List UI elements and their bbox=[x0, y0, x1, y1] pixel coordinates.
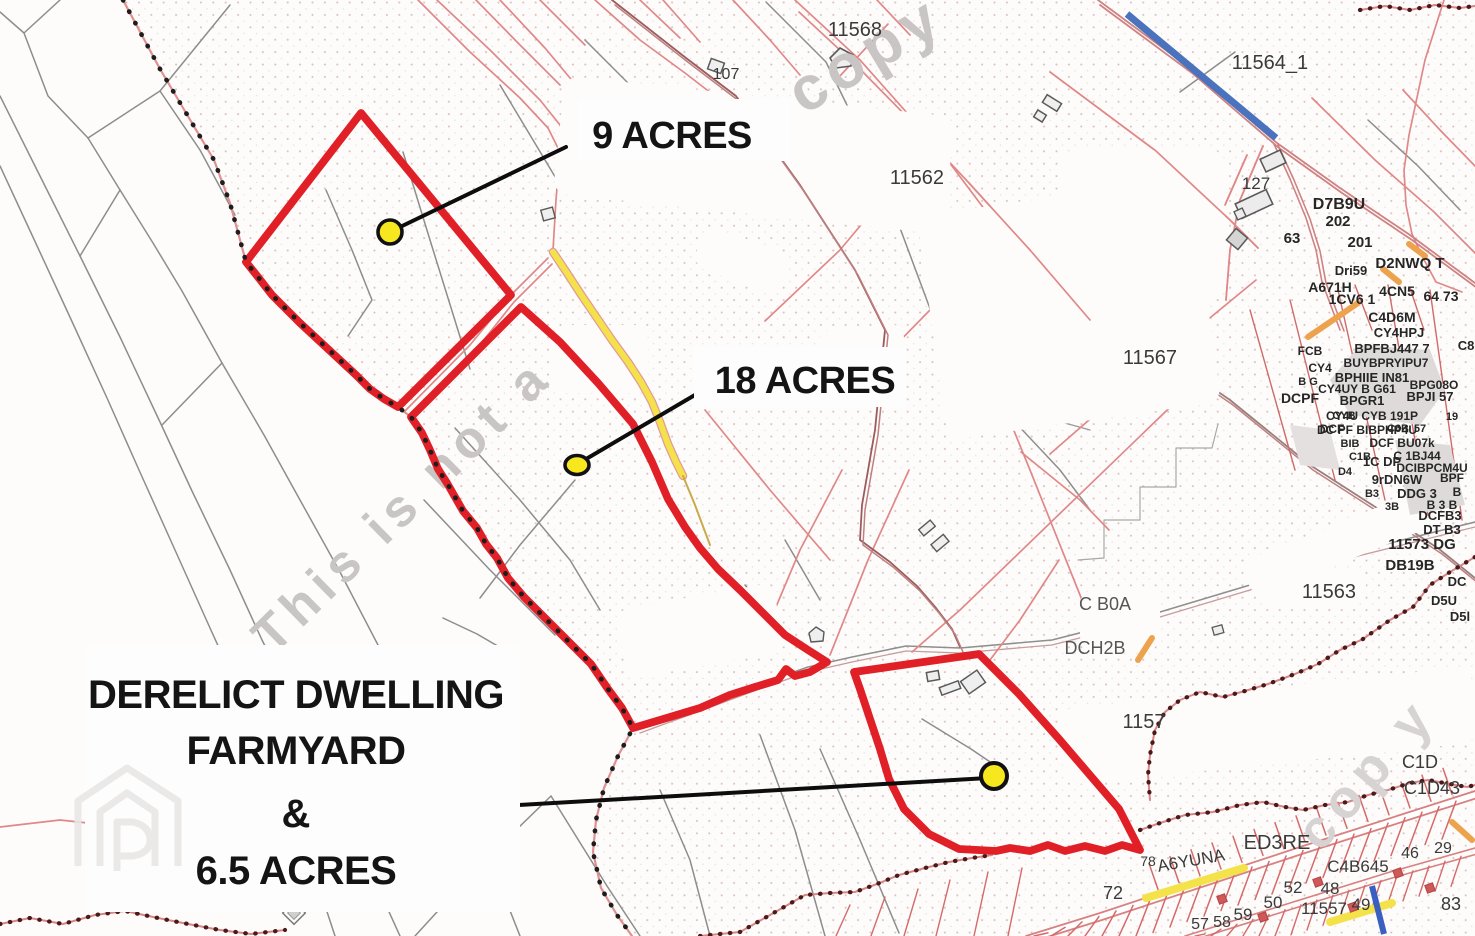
svg-text:DT B3: DT B3 bbox=[1423, 522, 1461, 537]
svg-text:11562: 11562 bbox=[890, 167, 944, 189]
svg-text:11573 DG: 11573 DG bbox=[1388, 536, 1456, 553]
svg-text:11564_1: 11564_1 bbox=[1232, 52, 1308, 74]
svg-text:BUYBPRYIPU7: BUYBPRYIPU7 bbox=[1344, 356, 1429, 370]
svg-text:C8: C8 bbox=[1458, 338, 1475, 353]
svg-text:4CN5: 4CN5 bbox=[1379, 283, 1415, 299]
svg-text:FARMYARD: FARMYARD bbox=[187, 729, 406, 773]
svg-text:ED3RE: ED3RE bbox=[1244, 832, 1311, 854]
svg-text:D2NWQ T: D2NWQ T bbox=[1375, 255, 1444, 272]
svg-text:C6B: C6B bbox=[1387, 423, 1409, 435]
svg-text:9rDN6W: 9rDN6W bbox=[1372, 472, 1423, 487]
svg-text:29: 29 bbox=[1434, 840, 1452, 857]
svg-text:18 ACRES: 18 ACRES bbox=[715, 360, 895, 402]
svg-text:6.5 ACRES: 6.5 ACRES bbox=[196, 849, 397, 893]
svg-text:BPJI 57: BPJI 57 bbox=[1407, 389, 1454, 404]
svg-text:58: 58 bbox=[1213, 914, 1231, 931]
svg-text:19: 19 bbox=[1446, 411, 1458, 423]
svg-text:46: 46 bbox=[1401, 845, 1419, 862]
svg-text:CYB: CYB bbox=[1332, 410, 1355, 422]
svg-text:72: 72 bbox=[1103, 883, 1123, 903]
svg-text:64 73: 64 73 bbox=[1423, 288, 1458, 304]
svg-text:57: 57 bbox=[1414, 423, 1426, 435]
svg-text:DCF: DCF bbox=[1320, 422, 1345, 436]
svg-text:3B: 3B bbox=[1385, 501, 1399, 513]
svg-text:DCFB3: DCFB3 bbox=[1418, 508, 1461, 523]
svg-text:C4B645: C4B645 bbox=[1327, 857, 1388, 876]
svg-text:63: 63 bbox=[1284, 230, 1301, 247]
svg-text:11563: 11563 bbox=[1302, 581, 1356, 603]
svg-text:DERELICT DWELLING: DERELICT DWELLING bbox=[88, 673, 504, 717]
svg-text:52: 52 bbox=[1284, 878, 1303, 897]
svg-text:48: 48 bbox=[1321, 879, 1340, 898]
svg-text:C4D6M: C4D6M bbox=[1368, 309, 1415, 325]
svg-text:D5l: D5l bbox=[1450, 609, 1470, 624]
svg-text:11568: 11568 bbox=[828, 19, 882, 41]
svg-text:83: 83 bbox=[1441, 894, 1461, 914]
svg-text:11567: 11567 bbox=[1123, 347, 1177, 369]
svg-text:BPFBJ447 7: BPFBJ447 7 bbox=[1354, 341, 1429, 356]
svg-text:B: B bbox=[1453, 485, 1462, 499]
svg-text:201: 201 bbox=[1347, 234, 1372, 251]
svg-text:&: & bbox=[282, 792, 311, 836]
svg-text:11557: 11557 bbox=[1301, 899, 1347, 918]
svg-text:C1D43: C1D43 bbox=[1404, 778, 1460, 798]
svg-text:BPF: BPF bbox=[1440, 471, 1464, 485]
svg-text:CY4: CY4 bbox=[1308, 361, 1332, 375]
svg-text:D7B9U: D7B9U bbox=[1313, 196, 1365, 213]
svg-text:D5U: D5U bbox=[1431, 593, 1457, 608]
svg-text:BPGR1: BPGR1 bbox=[1340, 393, 1385, 408]
svg-text:D4: D4 bbox=[1338, 466, 1353, 478]
svg-text:202: 202 bbox=[1325, 213, 1350, 230]
svg-text:107: 107 bbox=[713, 66, 740, 83]
svg-text:C1B: C1B bbox=[1349, 451, 1371, 463]
svg-text:B G: B G bbox=[1298, 376, 1318, 388]
svg-text:DCPF: DCPF bbox=[1281, 390, 1320, 406]
svg-text:50: 50 bbox=[1264, 893, 1283, 912]
svg-text:DCH2B: DCH2B bbox=[1064, 638, 1125, 658]
svg-text:9 ACRES: 9 ACRES bbox=[592, 115, 752, 157]
svg-text:BIB: BIB bbox=[1341, 438, 1360, 450]
svg-text:1CV6 1: 1CV6 1 bbox=[1329, 291, 1376, 307]
svg-text:Dri59: Dri59 bbox=[1335, 263, 1368, 278]
svg-text:59: 59 bbox=[1234, 905, 1253, 924]
svg-text:C1D: C1D bbox=[1402, 752, 1438, 772]
svg-text:57: 57 bbox=[1191, 916, 1209, 933]
svg-text:DCF BU07k: DCF BU07k bbox=[1369, 436, 1435, 450]
svg-text:DC: DC bbox=[1448, 574, 1467, 589]
svg-text:1157: 1157 bbox=[1122, 711, 1165, 733]
svg-text:DB19B: DB19B bbox=[1385, 557, 1434, 574]
svg-text:49: 49 bbox=[1352, 895, 1371, 914]
svg-text:FCB: FCB bbox=[1298, 344, 1323, 358]
svg-text:78: 78 bbox=[1140, 853, 1156, 869]
svg-text:CY4HPJ: CY4HPJ bbox=[1374, 325, 1425, 340]
svg-text:127: 127 bbox=[1242, 174, 1270, 193]
svg-text:B3: B3 bbox=[1365, 488, 1379, 500]
svg-text:C B0A: C B0A bbox=[1079, 594, 1131, 614]
